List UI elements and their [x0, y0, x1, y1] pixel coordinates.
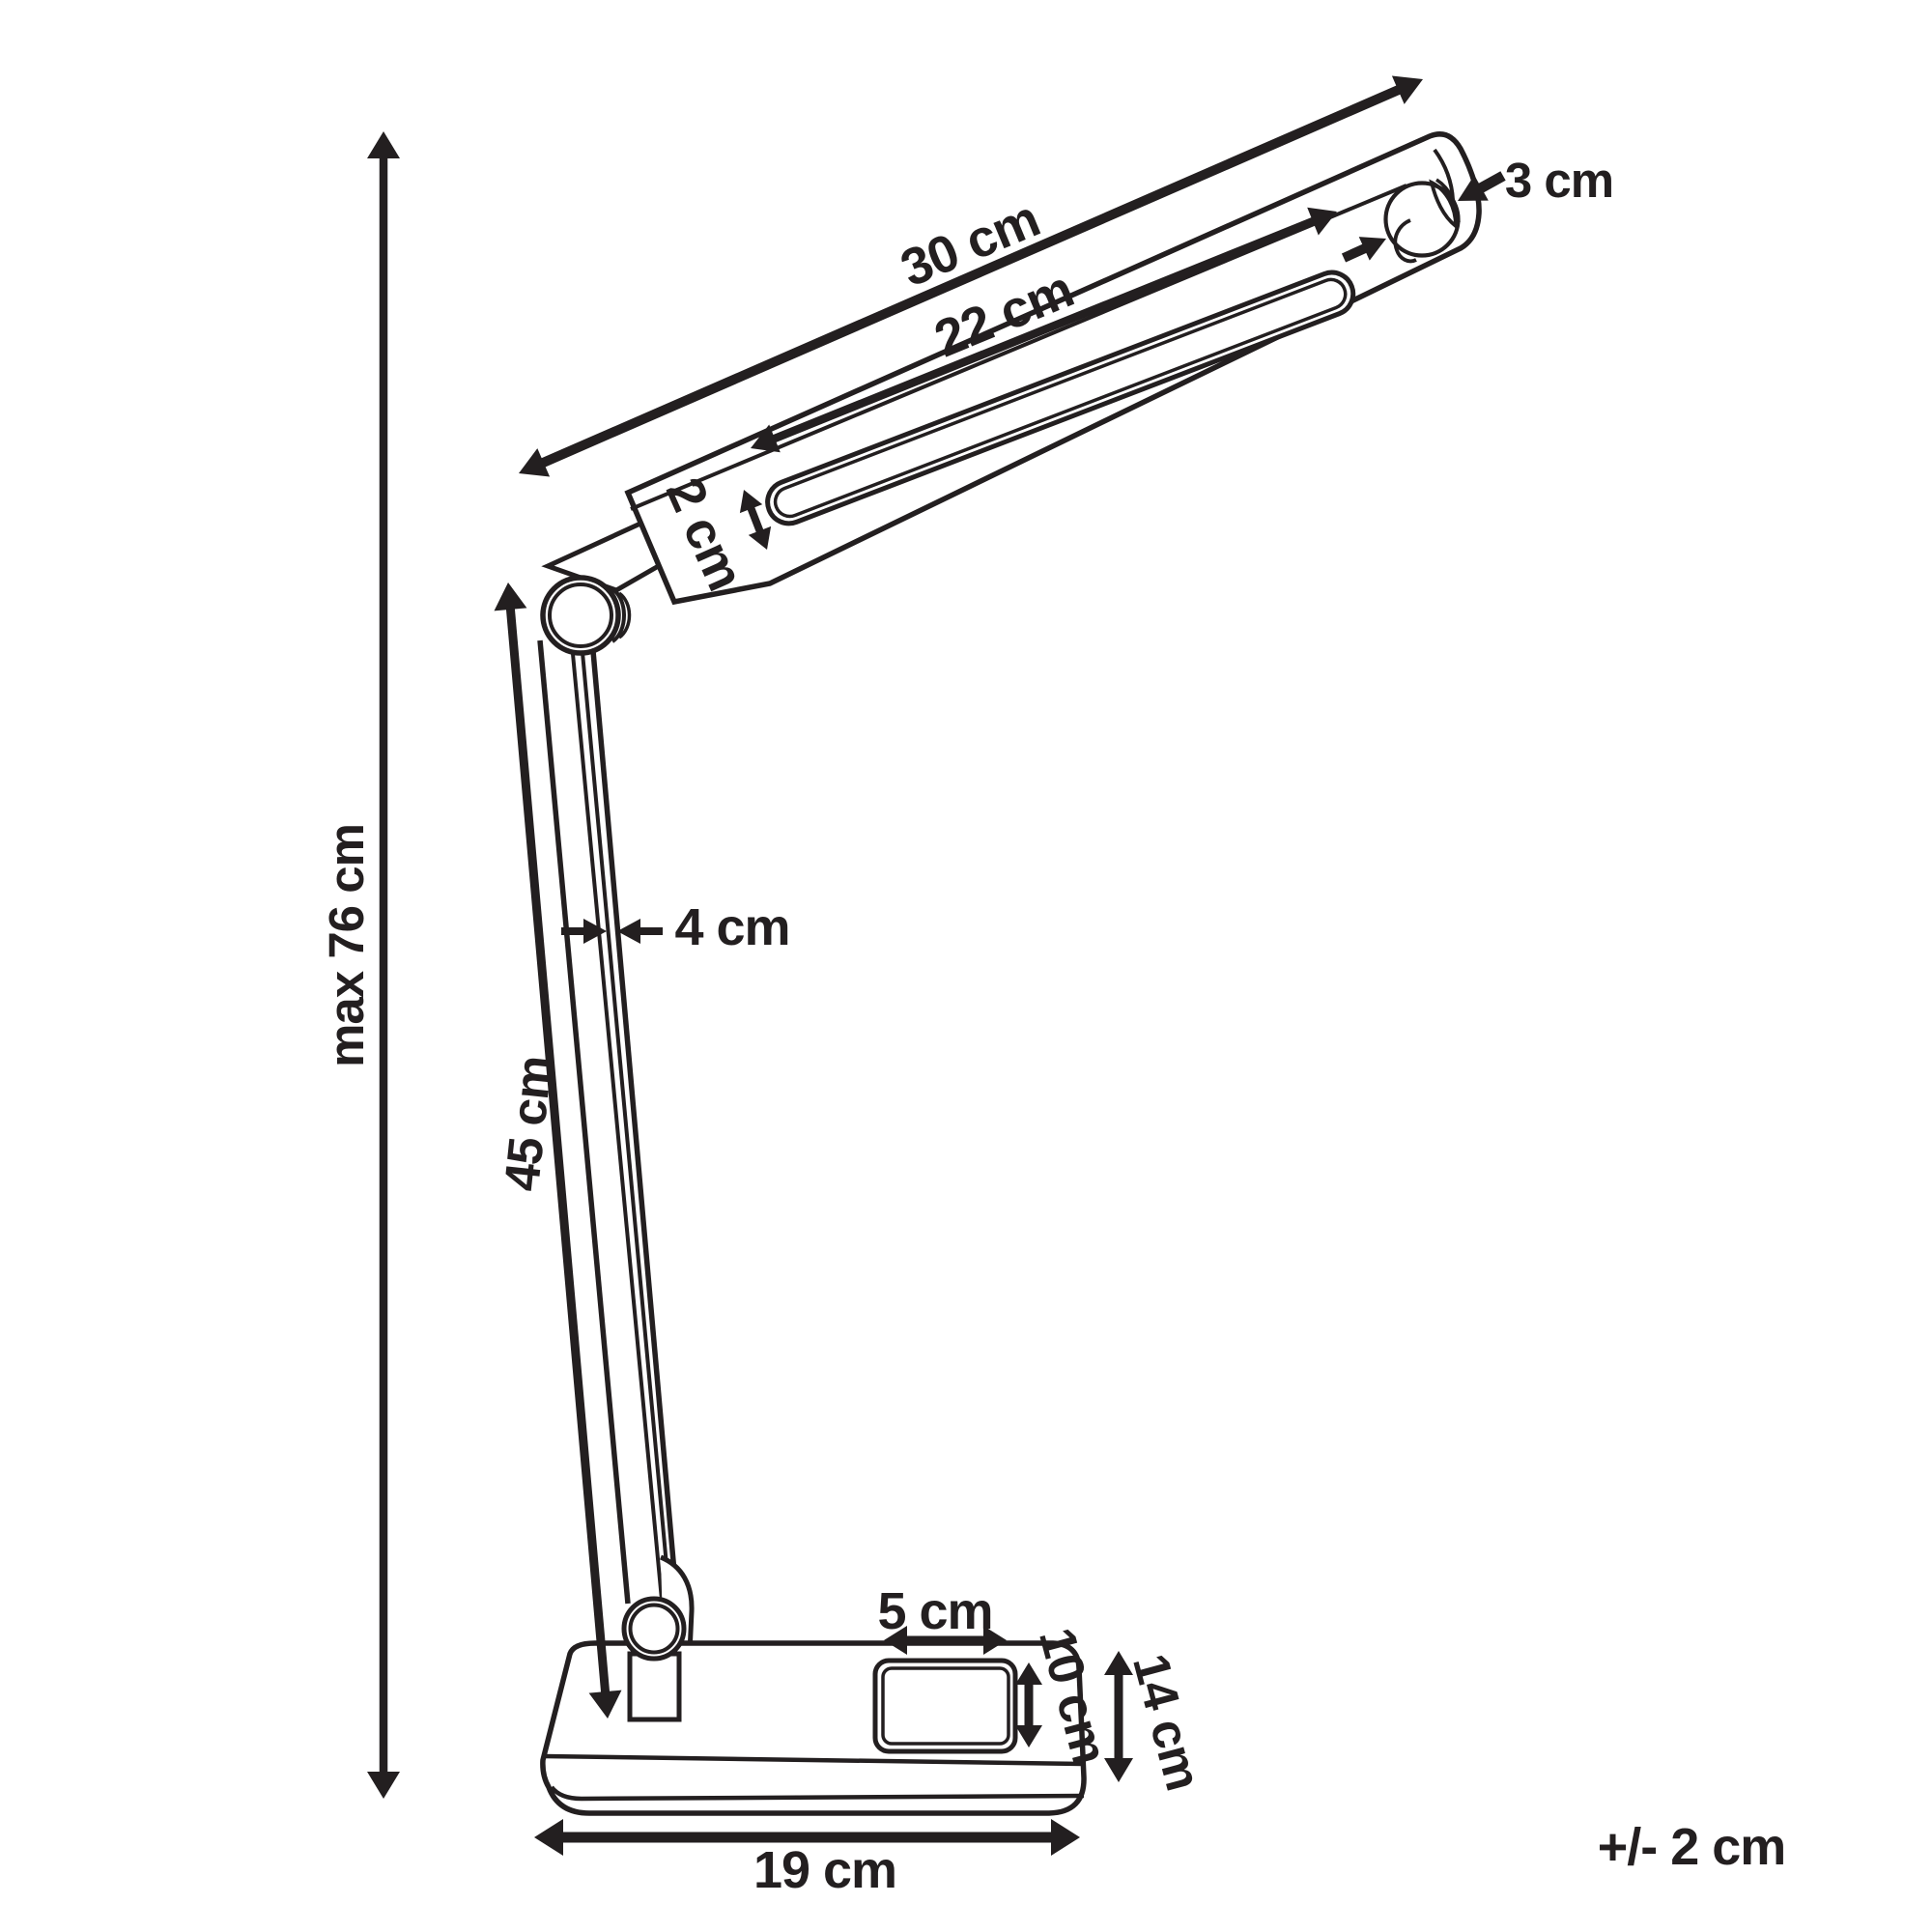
- svg-text:5 cm: 5 cm: [877, 1582, 992, 1640]
- svg-text:3 cm: 3 cm: [1505, 153, 1613, 208]
- svg-text:+/- 2 cm: +/- 2 cm: [1598, 1818, 1786, 1876]
- svg-text:max 76 cm: max 76 cm: [319, 824, 374, 1067]
- svg-text:19 cm: 19 cm: [753, 1841, 896, 1899]
- svg-text:4 cm: 4 cm: [674, 898, 789, 956]
